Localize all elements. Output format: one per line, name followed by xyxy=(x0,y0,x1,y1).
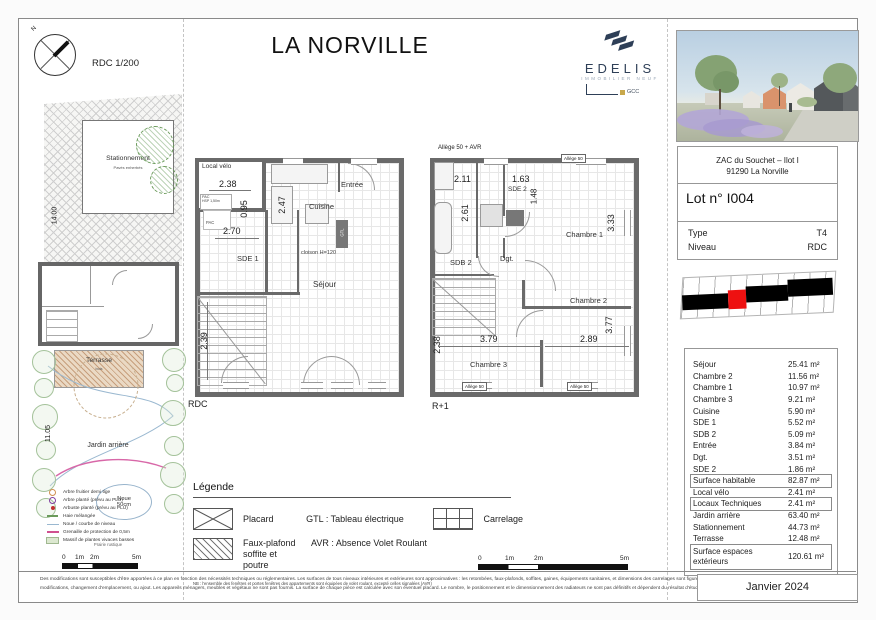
placard-swatch-icon xyxy=(193,508,233,530)
table-row: Terrasse12.48 m² xyxy=(691,533,831,545)
fruit-tree-icon xyxy=(46,489,59,496)
tree xyxy=(823,63,857,93)
level-value: RDC xyxy=(808,242,828,252)
tree xyxy=(32,350,56,374)
hedge-icon xyxy=(46,515,59,517)
sill-tag: Allège 50 xyxy=(567,382,592,391)
key-plan xyxy=(679,260,837,328)
window xyxy=(624,326,631,356)
sill-tag: Allège 50 xyxy=(561,154,586,163)
site-dim-bottom: 11.05 xyxy=(45,425,52,442)
room-label: Local vélo xyxy=(202,163,231,170)
gravel-line-icon xyxy=(46,531,59,533)
washbasin xyxy=(434,162,454,190)
legend-item: Arbre fruitier demi tige xyxy=(46,488,181,496)
table-row: SDE 15.52 m² xyxy=(691,417,831,429)
bush xyxy=(797,97,817,107)
key-plan-buildings xyxy=(787,278,833,297)
site-dim-top: 14.00 xyxy=(51,207,58,225)
compass-rose-icon: N xyxy=(34,34,76,76)
key-plan-buildings xyxy=(746,285,789,303)
type-value: T4 xyxy=(816,228,827,238)
sill-tag: Allège 50 xyxy=(462,382,487,391)
carrelage-swatch-icon xyxy=(433,508,473,530)
table-row: Cuisine5.90 m² xyxy=(691,405,831,417)
window xyxy=(223,382,249,389)
legend-item: Grenaille de protection de 0,5m xyxy=(46,528,181,536)
person xyxy=(789,103,792,112)
wall xyxy=(476,158,478,258)
legend-item: Noue / courbe de niveau xyxy=(46,520,181,528)
table-row-total: Surface espaces extérieurs120.61 m² xyxy=(691,545,831,569)
swale-line-icon xyxy=(46,524,59,525)
brand-tagline: IMMOBILIER NEUF xyxy=(570,76,670,81)
type-box: Type T4 Niveau RDC xyxy=(677,221,838,260)
kitchen-counter xyxy=(271,164,328,184)
house-footprint xyxy=(38,262,179,346)
footer-disclaimer-line2: modifications, changement d'emplacement,… xyxy=(40,586,723,591)
project-photo xyxy=(676,30,859,142)
scale-bar: 0 1m 2m 5m xyxy=(478,564,628,570)
key-plan-buildings xyxy=(682,293,729,310)
legend-divider xyxy=(193,497,511,498)
planting-area xyxy=(150,166,178,194)
lavender xyxy=(741,125,783,138)
electrical-gtl-block: GTL xyxy=(336,220,348,248)
table-row: SDE 21.86 m² xyxy=(691,463,831,475)
table-row: Chambre 211.56 m² xyxy=(691,371,831,383)
legend-item: Arbuste planté (prévu au PLU) xyxy=(46,504,181,512)
table-row: Chambre 39.21 m² xyxy=(691,394,831,406)
date-box: Janvier 2024 xyxy=(697,574,858,601)
floor-plan-r1: Allège 50 + AVR Allège 50 Allège 50 xyxy=(428,150,640,400)
garden-label: Jardin arrière xyxy=(68,442,148,449)
wall xyxy=(297,210,299,294)
key-plan-highlight-lot xyxy=(728,290,747,310)
brand-group: GCC xyxy=(620,89,639,95)
plan-sheet: N RDC 1/200 LA NORVILLE EDELIS IMMOBILIE… xyxy=(0,0,876,620)
shower xyxy=(480,204,503,227)
table-row: Séjour25.41 m² xyxy=(691,359,831,371)
footer-disclaimer-line1: Des modifications sont susceptibles d'êt… xyxy=(40,577,778,582)
window xyxy=(351,158,377,165)
scale-bar: 0 1m 2m 5m xyxy=(62,563,138,569)
perennial-bed-icon xyxy=(46,537,59,544)
table-row: Entrée3.84 m² xyxy=(691,440,831,452)
group-mark-icon xyxy=(620,90,625,95)
window xyxy=(624,210,631,236)
table-row: Stationnement44.73 m² xyxy=(691,521,831,533)
shrub-icon xyxy=(46,506,59,510)
page-title: LA NORVILLE xyxy=(230,32,470,59)
table-row: SDB 25.09 m² xyxy=(691,429,831,441)
wall xyxy=(522,306,631,309)
lot-number: Lot n° I004 xyxy=(686,190,754,206)
level-label: Niveau xyxy=(688,242,716,252)
legend-title: Légende xyxy=(193,481,523,493)
brand-logo-icon xyxy=(604,26,641,62)
address-line2: 91290 La Norville xyxy=(678,167,837,176)
legend-item: Arbre planté (prévu au PLU) xyxy=(46,496,181,504)
site-legend: Arbre fruitier demi tige Arbre planté (p… xyxy=(46,488,181,544)
wall xyxy=(430,274,494,276)
window xyxy=(368,382,386,389)
window xyxy=(301,382,323,389)
wall xyxy=(540,340,543,387)
planting-area xyxy=(136,126,174,164)
wall xyxy=(265,210,268,294)
brand-name: EDELIS xyxy=(570,61,670,76)
table-row-total: Locaux Techniques2.41 m² xyxy=(691,498,831,510)
legend-item: Massif de plantes vivaces basses xyxy=(46,536,181,544)
plan-caption-rdc: RDC xyxy=(188,399,208,409)
tree-icon xyxy=(46,497,59,504)
brand-logo: EDELIS IMMOBILIER NEUF GCC xyxy=(570,28,670,108)
scale-label: RDC 1/200 xyxy=(92,58,139,69)
bathtub xyxy=(434,202,452,254)
table-row: Dgt.3.51 m² xyxy=(691,452,831,464)
faux-plafond-swatch-icon xyxy=(193,538,233,560)
staircase xyxy=(432,278,496,336)
wall xyxy=(503,158,505,216)
sill-note: Allège 50 + AVR xyxy=(438,145,481,151)
address-box: ZAC du Souchet – Ilot I 91290 La Norvill… xyxy=(677,146,838,185)
address-line1: ZAC du Souchet – Ilot I xyxy=(678,156,837,165)
footer-divider xyxy=(18,571,856,572)
plan-caption-r1: R+1 xyxy=(432,401,449,411)
floor-plan-rdc: Local vélo 2.38 PAC HSP 1,50m GTL PAC xyxy=(193,150,405,400)
window xyxy=(283,158,303,165)
house xyxy=(705,93,719,105)
lot-box: Lot n° I004 xyxy=(677,183,838,223)
wall xyxy=(338,158,340,192)
table-row-total: Surface habitable82.87 m² xyxy=(691,475,831,487)
legend-item: Haie mélangée xyxy=(46,512,181,520)
table-row: Local vélo2.41 m² xyxy=(691,487,831,499)
window xyxy=(484,158,508,165)
wall xyxy=(195,292,300,295)
table-row: Jardin arrière63.40 m² xyxy=(691,510,831,522)
fold-line xyxy=(183,19,184,600)
areas-table: Séjour25.41 m² Chambre 211.56 m² Chambre… xyxy=(684,348,838,576)
table-row: Chambre 110.97 m² xyxy=(691,382,831,394)
type-label: Type xyxy=(688,228,708,238)
window xyxy=(331,382,353,389)
